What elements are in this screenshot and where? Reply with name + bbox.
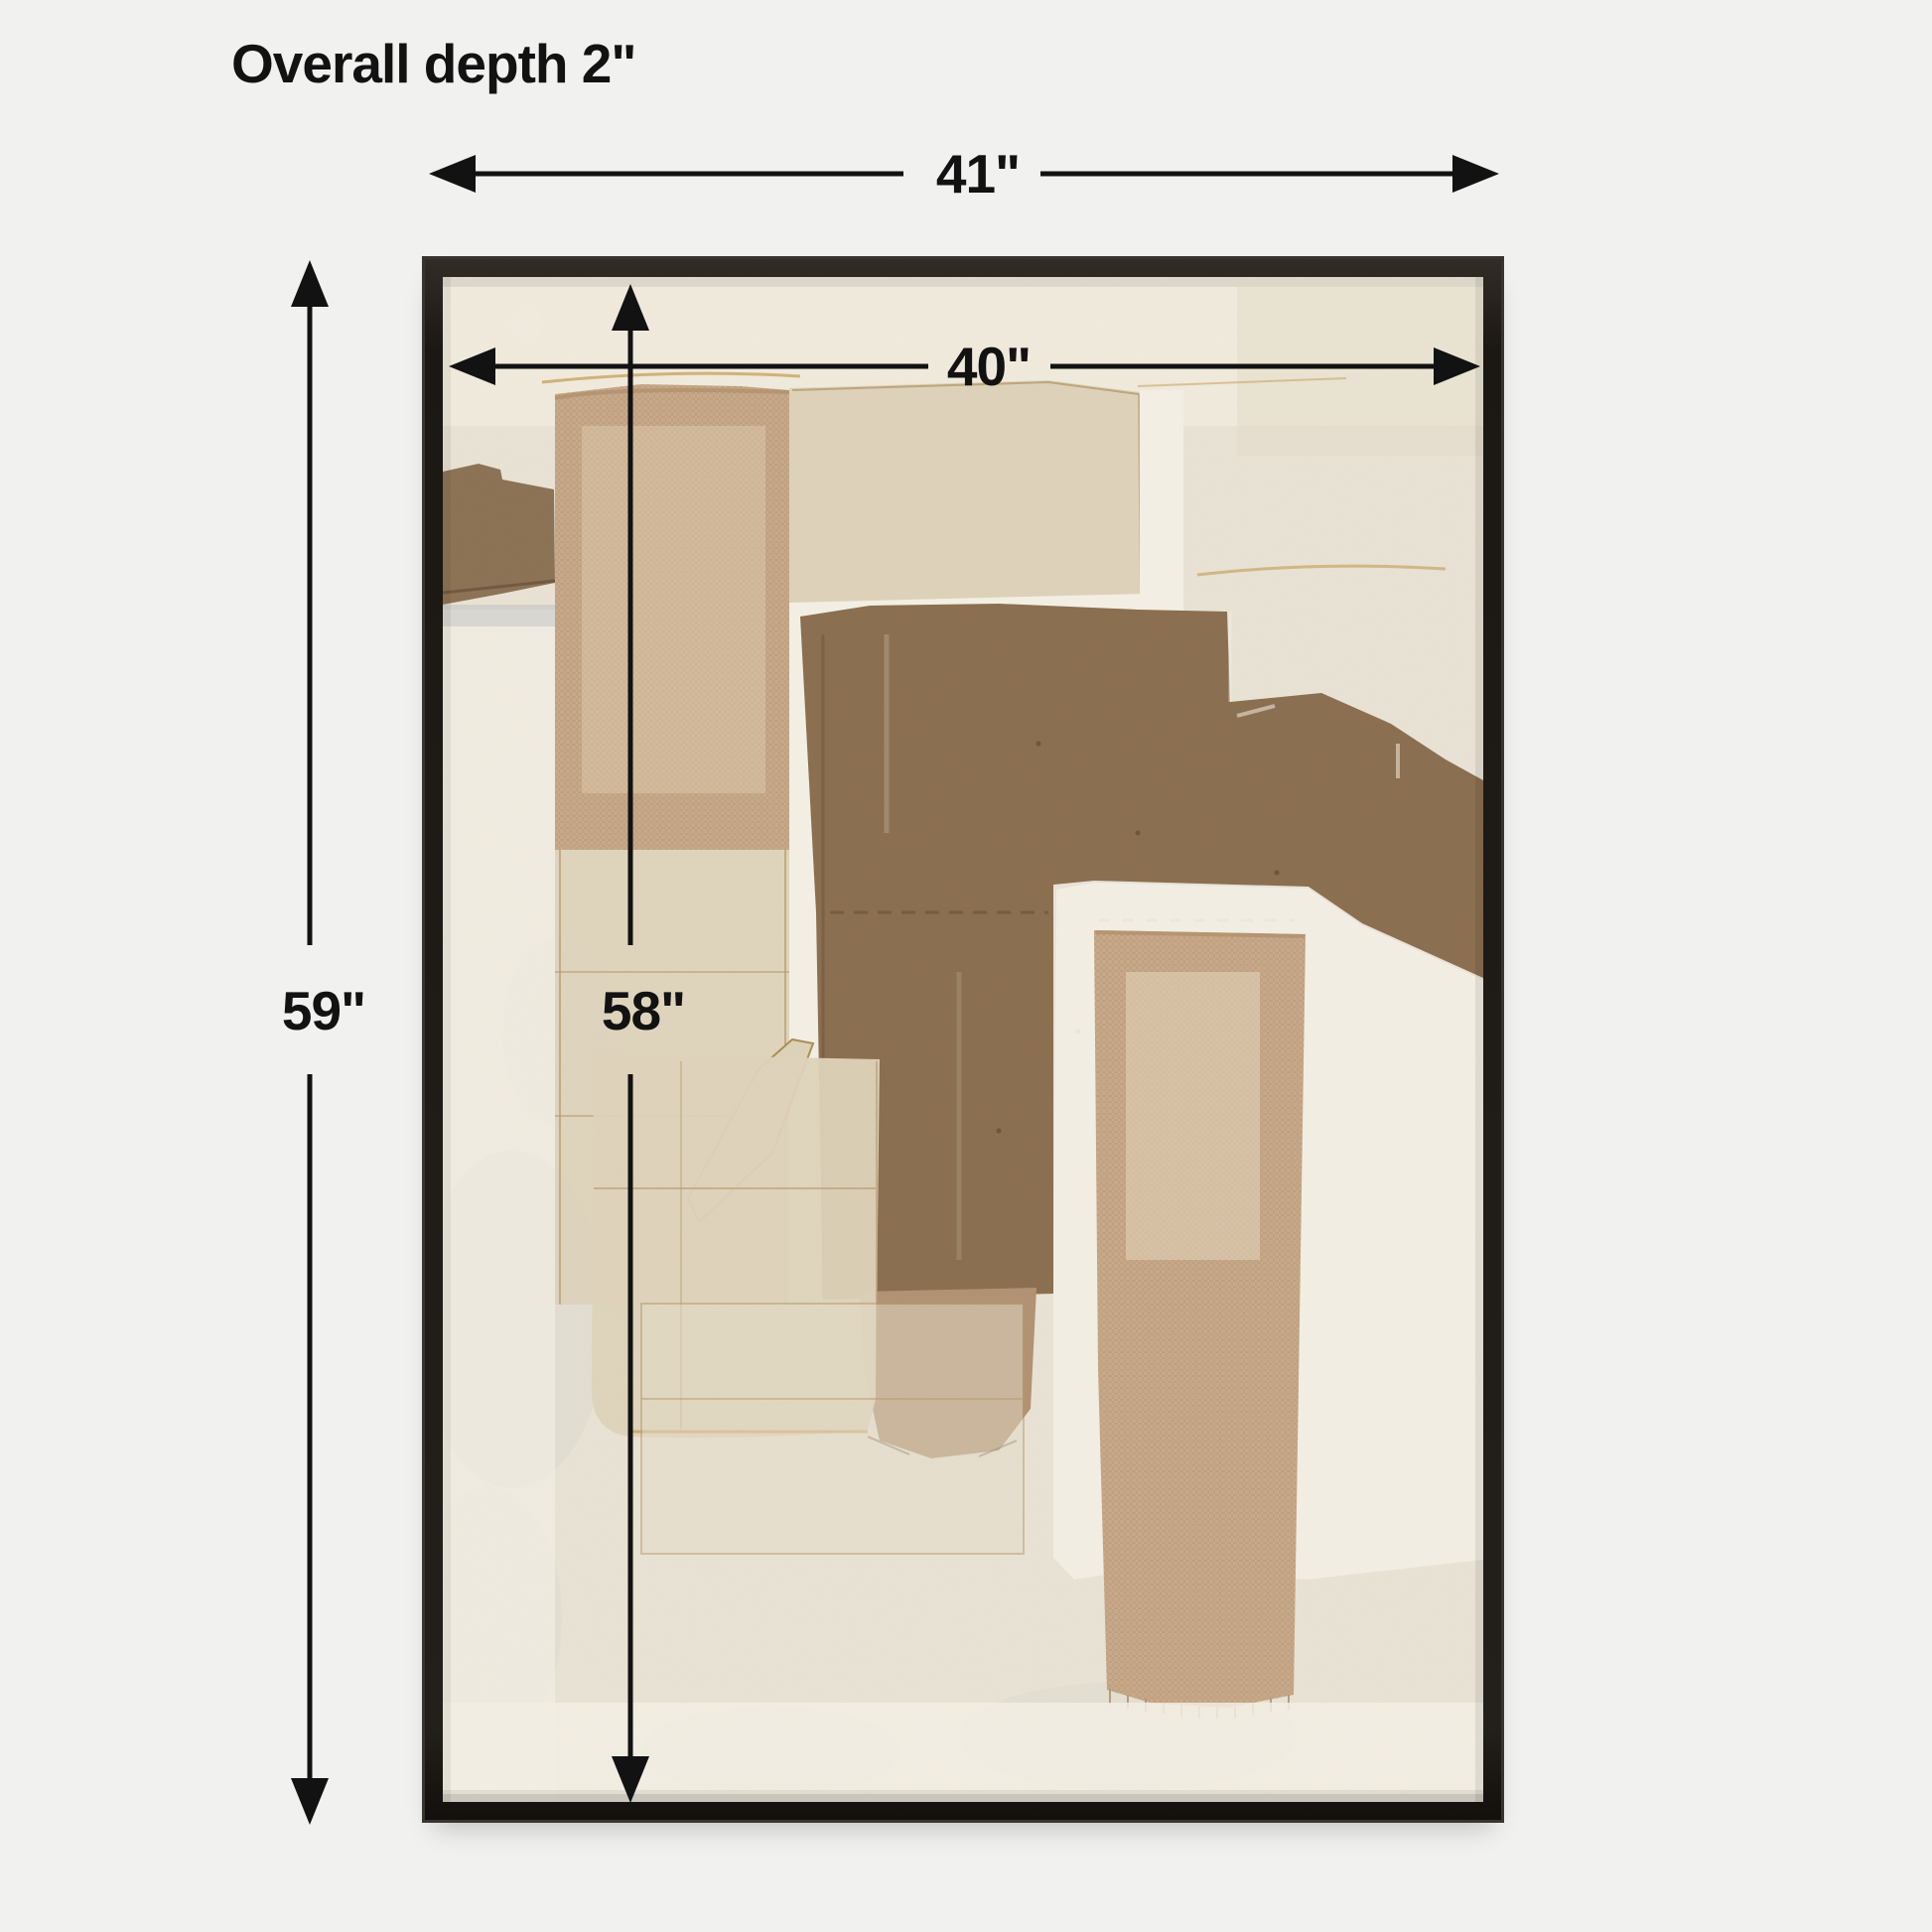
abstract-artwork <box>443 277 1483 1802</box>
inner-width-label: 40" <box>947 335 1031 398</box>
depth-annotation: Overall depth 2" <box>231 34 635 93</box>
outer-height-dimension <box>291 260 329 1825</box>
product-dimension-diagram: Overall depth 2" <box>0 0 1932 1932</box>
picture-frame <box>422 256 1504 1823</box>
inner-height-label: 58" <box>602 979 685 1042</box>
outer-width-label: 41" <box>936 142 1020 206</box>
texture-overlay <box>443 277 1483 1802</box>
outer-height-label: 59" <box>282 979 365 1042</box>
